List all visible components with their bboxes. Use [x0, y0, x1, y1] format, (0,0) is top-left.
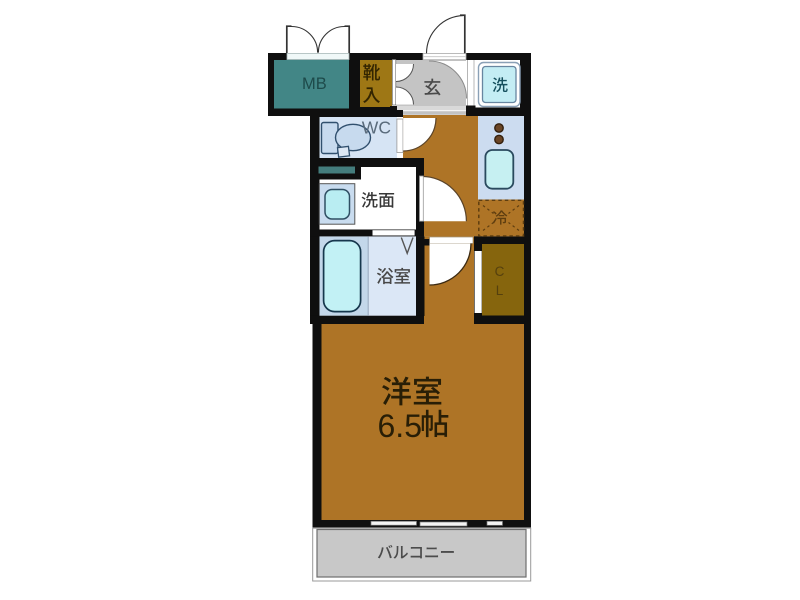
svg-text:6.5: 6.5: [378, 408, 422, 444]
svg-text:C: C: [495, 264, 505, 279]
svg-text:MB: MB: [302, 75, 327, 93]
svg-text:L: L: [496, 283, 504, 298]
svg-text:WC: WC: [362, 117, 391, 137]
